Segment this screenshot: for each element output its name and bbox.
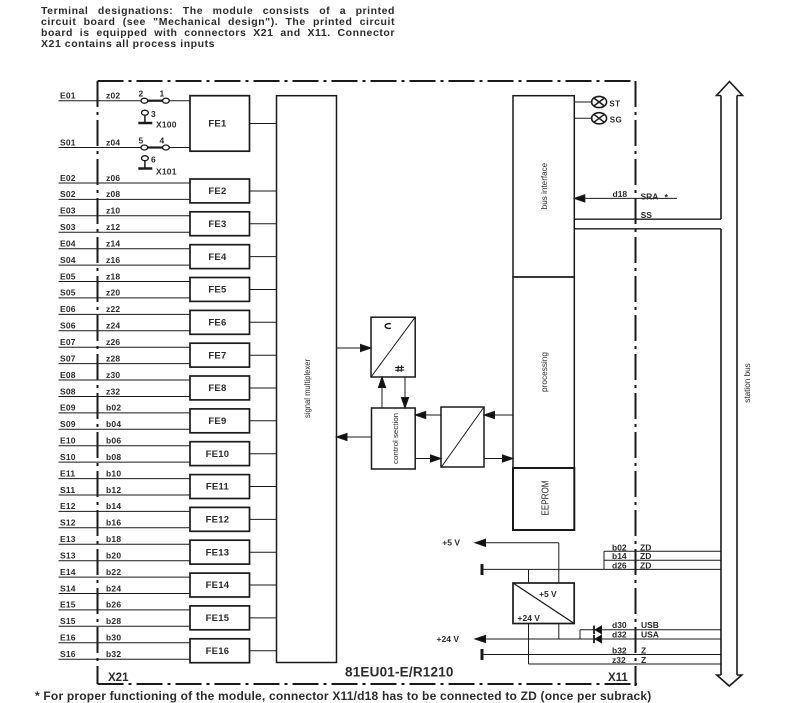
svg-text:S07: S07	[60, 353, 76, 363]
svg-text:b10: b10	[106, 468, 121, 478]
svg-text:z12: z12	[106, 222, 120, 232]
svg-text:FE1: FE1	[208, 119, 227, 130]
svg-text:z28: z28	[106, 353, 120, 363]
svg-text:S05: S05	[60, 288, 76, 298]
svg-text:S16: S16	[60, 649, 76, 659]
svg-text:FE3: FE3	[208, 219, 226, 230]
svg-text:+24 V: +24 V	[518, 613, 541, 623]
svg-text:z20: z20	[106, 288, 120, 298]
svg-text:z22: z22	[106, 304, 120, 314]
svg-text:S13: S13	[60, 551, 76, 561]
svg-text:b28: b28	[106, 616, 121, 626]
svg-text:E16: E16	[60, 633, 76, 643]
svg-text:+5 V: +5 V	[539, 589, 557, 599]
svg-text:E01: E01	[60, 91, 76, 101]
svg-text:b32: b32	[106, 649, 121, 659]
svg-text:station bus: station bus	[743, 363, 752, 403]
svg-text:FE6: FE6	[208, 318, 226, 329]
svg-text:*: *	[665, 193, 669, 203]
svg-text:E15: E15	[60, 600, 76, 610]
svg-text:E05: E05	[60, 271, 76, 281]
svg-text:S10: S10	[60, 452, 76, 462]
svg-text:bus interface: bus interface	[540, 162, 549, 209]
svg-text:X100: X100	[156, 120, 177, 130]
svg-text:S14: S14	[60, 583, 76, 593]
svg-text:z02: z02	[106, 91, 120, 101]
svg-text:z10: z10	[106, 206, 120, 216]
svg-text:E06: E06	[60, 304, 76, 314]
svg-text:FE15: FE15	[206, 613, 230, 624]
svg-text:E08: E08	[60, 370, 76, 380]
svg-text:b30: b30	[106, 633, 121, 643]
svg-text:SRA: SRA	[641, 192, 659, 202]
svg-text:processing: processing	[540, 352, 549, 392]
svg-text:E14: E14	[60, 567, 76, 577]
svg-text:3: 3	[151, 109, 156, 119]
svg-text:FE7: FE7	[208, 350, 226, 361]
svg-text:5: 5	[139, 135, 144, 145]
svg-text:FE16: FE16	[206, 646, 230, 657]
svg-text:E11: E11	[60, 468, 75, 478]
svg-text:control section: control section	[391, 413, 400, 464]
svg-text:FE8: FE8	[208, 383, 226, 394]
svg-text:FE5: FE5	[208, 285, 227, 296]
svg-text:E10: E10	[60, 436, 76, 446]
svg-text:FE2: FE2	[208, 186, 226, 197]
svg-text:S04: S04	[60, 255, 76, 265]
svg-text:FE4: FE4	[208, 252, 227, 263]
svg-text:X101: X101	[156, 167, 177, 177]
svg-text:USA: USA	[641, 629, 659, 639]
svg-text:+24 V: +24 V	[437, 634, 460, 644]
svg-text:E09: E09	[60, 403, 76, 413]
svg-text:b04: b04	[106, 419, 121, 429]
svg-text:2: 2	[139, 89, 144, 99]
svg-text:81EU01-E/R1210: 81EU01-E/R1210	[345, 665, 454, 680]
svg-text:z30: z30	[106, 370, 120, 380]
svg-text:E03: E03	[60, 206, 76, 216]
svg-text:E07: E07	[60, 337, 76, 347]
svg-text:b24: b24	[106, 583, 121, 593]
svg-text:z06: z06	[106, 173, 120, 183]
svg-text:X11: X11	[608, 672, 628, 684]
svg-text:S08: S08	[60, 386, 76, 396]
svg-text:z08: z08	[106, 189, 120, 199]
svg-text:FE10: FE10	[206, 449, 230, 460]
svg-text:b26: b26	[106, 600, 121, 610]
svg-text:6: 6	[151, 155, 156, 165]
svg-text:S03: S03	[60, 222, 76, 232]
svg-text:E04: E04	[60, 239, 76, 249]
svg-text:FE12: FE12	[206, 515, 230, 526]
svg-text:d32: d32	[612, 629, 627, 639]
svg-text:S11: S11	[60, 485, 75, 495]
svg-text:b12: b12	[106, 485, 121, 495]
svg-text:S02: S02	[60, 189, 76, 199]
svg-text:d18: d18	[613, 189, 628, 199]
svg-text:Z: Z	[641, 655, 646, 665]
svg-text:z14: z14	[106, 239, 120, 249]
svg-text:ZD: ZD	[640, 560, 651, 570]
svg-text:X21: X21	[108, 672, 129, 684]
svg-text:b08: b08	[106, 452, 121, 462]
svg-text:b20: b20	[106, 551, 121, 561]
svg-text:1: 1	[160, 89, 165, 99]
svg-text:4: 4	[160, 135, 165, 145]
svg-text:b14: b14	[106, 501, 121, 511]
svg-text:b06: b06	[106, 436, 121, 446]
svg-text:d26: d26	[612, 560, 627, 570]
svg-text:z26: z26	[106, 337, 120, 347]
svg-text:S06: S06	[60, 321, 76, 331]
svg-text:SG: SG	[610, 116, 622, 125]
svg-text:S01: S01	[60, 137, 76, 147]
svg-text:z16: z16	[106, 255, 120, 265]
svg-text:E13: E13	[60, 534, 76, 544]
svg-text:z04: z04	[106, 137, 120, 147]
svg-text:b22: b22	[106, 567, 121, 577]
svg-text:FE11: FE11	[206, 482, 230, 493]
svg-text:E02: E02	[60, 173, 76, 183]
svg-text:b16: b16	[106, 518, 121, 528]
svg-text:signal multiplexer: signal multiplexer	[303, 359, 312, 418]
svg-text:b18: b18	[106, 534, 121, 544]
svg-text:b02: b02	[106, 403, 121, 413]
svg-text:S12: S12	[60, 518, 76, 528]
svg-text:Z: Z	[641, 645, 646, 655]
svg-text:z32: z32	[612, 655, 626, 665]
svg-text:S09: S09	[60, 419, 76, 429]
svg-text:z18: z18	[106, 271, 120, 281]
svg-text:E12: E12	[60, 501, 76, 511]
svg-text:+5 V: +5 V	[442, 537, 460, 547]
svg-text:FE14: FE14	[206, 580, 230, 591]
svg-text:FE13: FE13	[206, 547, 230, 558]
svg-text:EEPROM: EEPROM	[539, 481, 551, 516]
svg-text:ST: ST	[609, 99, 620, 108]
svg-text:FE9: FE9	[208, 416, 226, 427]
svg-text:b32: b32	[612, 645, 627, 655]
svg-text:S15: S15	[60, 616, 76, 626]
svg-text:SS: SS	[641, 210, 653, 220]
svg-text:z32: z32	[106, 386, 120, 396]
svg-text:z24: z24	[106, 321, 120, 331]
